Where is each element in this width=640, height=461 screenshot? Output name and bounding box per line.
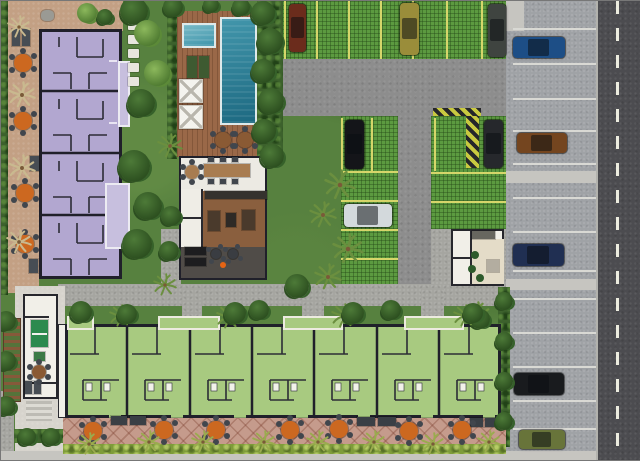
stepping-stone <box>128 77 139 86</box>
amenity-steps <box>26 401 52 421</box>
stepping-stone <box>128 63 139 72</box>
stepping-stone <box>128 21 139 30</box>
stall-line <box>341 258 398 260</box>
top-terrace <box>1 1 123 31</box>
car <box>345 120 364 169</box>
table-set <box>200 414 232 446</box>
furniture <box>357 417 375 426</box>
curb-pad-top <box>506 1 524 31</box>
stall-line <box>513 400 596 402</box>
furniture <box>12 29 20 46</box>
stall-line <box>513 28 596 30</box>
stall-line <box>348 1 350 59</box>
furniture <box>226 213 236 227</box>
pergola <box>3 318 21 402</box>
tree-bush <box>463 303 483 323</box>
stepping-stone <box>128 35 139 44</box>
main-pool <box>220 17 257 125</box>
car <box>519 430 565 449</box>
amenity-hedge <box>14 429 65 443</box>
games-room-wall <box>25 316 49 318</box>
stall-line <box>513 197 596 199</box>
furniture <box>111 416 127 425</box>
palm-tree <box>300 249 328 277</box>
stall-line <box>371 118 373 171</box>
daybed <box>179 105 203 129</box>
table-set <box>446 414 478 446</box>
furniture <box>220 179 226 184</box>
car <box>400 3 419 55</box>
pool-hedge-right <box>257 1 283 165</box>
furniture <box>220 157 226 162</box>
crossing-pad-1 <box>506 171 598 183</box>
stall-line <box>341 200 398 202</box>
tree-bush <box>117 304 137 324</box>
pool-hedge-left <box>167 9 177 159</box>
townhouse-roof-terrace-4 <box>404 316 464 330</box>
furniture <box>242 210 255 230</box>
furniture <box>185 247 206 255</box>
furniture <box>29 259 38 273</box>
stall-line <box>431 172 506 174</box>
stall-line <box>431 201 506 203</box>
car <box>513 244 564 266</box>
table-set <box>9 177 41 209</box>
stepping-stone <box>128 49 139 58</box>
kiosk-room-divider <box>453 257 472 259</box>
table-set <box>230 125 260 155</box>
car <box>289 4 306 52</box>
townhouse-roof-terrace-3 <box>283 316 343 330</box>
stall-line <box>596 1 598 460</box>
stall-line <box>513 163 596 165</box>
furniture <box>485 418 498 427</box>
stall-line <box>434 118 436 171</box>
car <box>488 4 506 57</box>
clubhouse-restrooms <box>181 189 203 249</box>
furniture <box>472 231 495 239</box>
stall-line <box>341 118 343 171</box>
stall-line <box>513 366 596 368</box>
tree-bush <box>161 206 181 226</box>
table-set <box>393 415 425 447</box>
stall-line <box>446 1 448 59</box>
street-center-line <box>616 1 619 460</box>
car <box>513 37 565 58</box>
accent-dot <box>476 274 484 282</box>
stall-line <box>316 1 318 59</box>
table-set <box>7 105 39 137</box>
stall-line <box>513 231 596 233</box>
accessible-stall-stripe-h <box>433 108 481 116</box>
car <box>514 373 564 395</box>
furniture <box>204 164 250 177</box>
stall-line <box>380 1 382 59</box>
stall-line <box>481 1 483 59</box>
table-set <box>178 158 206 186</box>
crossing-pad-2 <box>506 279 598 290</box>
tree-bush <box>118 150 150 182</box>
furniture <box>208 179 214 184</box>
table-set <box>274 414 306 446</box>
stall-line <box>513 298 596 300</box>
townhouse-roof-terrace-1 <box>67 316 94 330</box>
furniture <box>205 191 267 199</box>
stall-line <box>513 270 596 272</box>
furniture <box>232 179 238 184</box>
furniture <box>232 157 238 162</box>
apartment-balcony-2 <box>105 183 130 249</box>
stall-line <box>513 332 596 334</box>
palm-tree <box>295 187 323 215</box>
car <box>344 204 392 227</box>
palm-tree <box>308 153 340 185</box>
car <box>517 133 567 153</box>
clubhouse-restroom-divider <box>181 217 201 219</box>
left-hedge <box>1 1 8 295</box>
site-plan <box>0 0 640 461</box>
accent-dot <box>220 262 226 268</box>
stall-line <box>513 98 596 100</box>
furniture <box>487 260 499 272</box>
furniture <box>187 56 197 78</box>
furniture <box>208 157 214 162</box>
furniture <box>199 56 209 78</box>
stall-line <box>513 130 596 132</box>
accent-dot <box>471 251 479 259</box>
stall-line <box>341 229 398 231</box>
stall-line <box>284 1 286 59</box>
stall-line <box>341 171 398 173</box>
furniture <box>30 156 39 171</box>
furniture <box>22 29 30 46</box>
furniture <box>208 211 220 231</box>
accessible-stall-stripe-v <box>466 116 479 168</box>
tree-bush <box>127 89 155 117</box>
townhouse-roof-terrace-2 <box>158 316 220 330</box>
accent-dot <box>468 265 476 273</box>
clubhouse-path <box>161 229 181 286</box>
round <box>41 10 54 21</box>
furniture <box>130 416 146 425</box>
pingpong <box>31 320 48 347</box>
drive-lane-vertical <box>398 59 431 287</box>
kids-pool <box>182 23 216 48</box>
car <box>484 120 503 168</box>
table-set <box>25 358 53 386</box>
daybed <box>179 79 203 103</box>
stall-line <box>513 63 596 65</box>
table-set <box>148 414 180 446</box>
furniture <box>185 258 206 266</box>
table-set <box>77 415 109 447</box>
table-set <box>9 228 41 260</box>
tree-bush <box>134 192 162 220</box>
street <box>598 1 640 460</box>
table-set <box>323 413 355 445</box>
townhouse-building <box>65 324 501 418</box>
table-set <box>7 47 39 79</box>
townhouse-floorplan-walls <box>65 324 501 418</box>
